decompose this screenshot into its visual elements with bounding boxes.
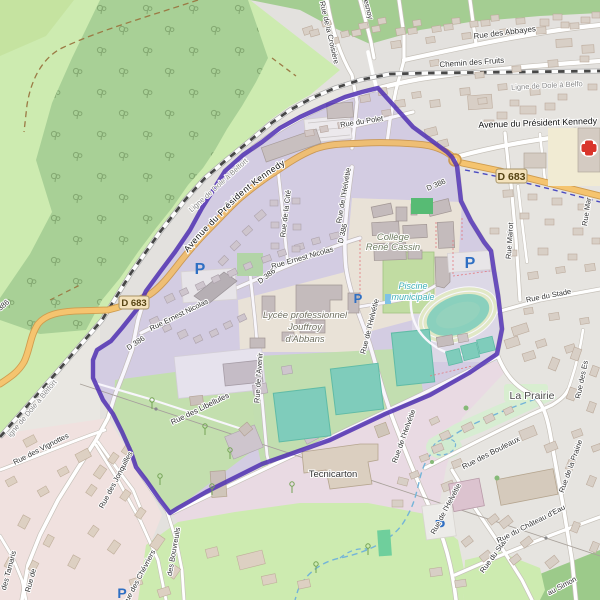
svg-text:P: P	[465, 255, 476, 272]
svg-text:municipale: municipale	[391, 292, 434, 302]
svg-text:D 683: D 683	[497, 171, 525, 183]
svg-text:Lycée professionnel: Lycée professionnel	[263, 310, 348, 321]
svg-text:La Prairie: La Prairie	[510, 390, 555, 402]
svg-text:P: P	[354, 291, 363, 306]
svg-text:Tecnicarton: Tecnicarton	[309, 469, 358, 480]
svg-text:D 683: D 683	[121, 298, 146, 309]
svg-text:Piscine: Piscine	[398, 281, 427, 291]
svg-text:d'Abbans: d'Abbans	[285, 334, 325, 345]
svg-text:René Cassin: René Cassin	[366, 242, 420, 253]
svg-text:Jouffroy: Jouffroy	[287, 322, 323, 333]
svg-text:P: P	[195, 261, 206, 278]
